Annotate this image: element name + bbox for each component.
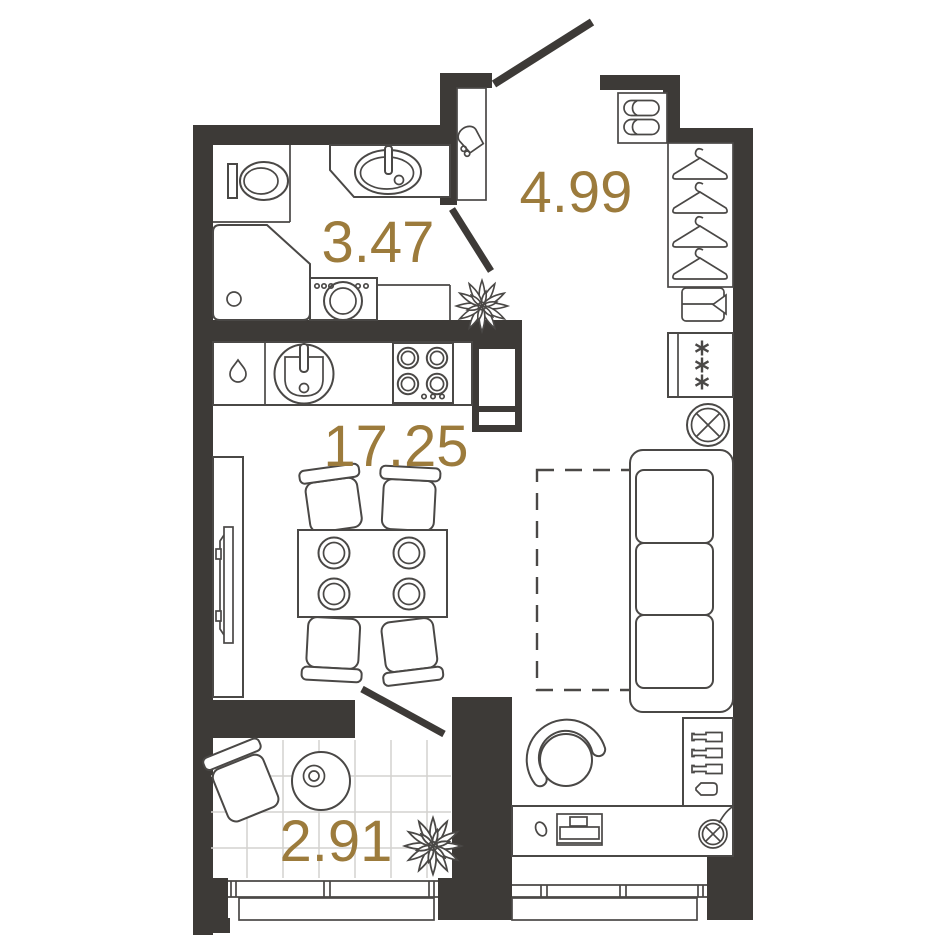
floor-plan-page: 3.47 4.99 17.25 2.91 xyxy=(0,0,945,945)
wall-balcony-corner-right xyxy=(438,878,452,920)
balcony-door-leaf xyxy=(362,689,444,734)
tap-icon xyxy=(300,344,308,372)
wall-bathroom-top xyxy=(193,125,448,145)
shoe-shelf xyxy=(618,93,667,143)
tv-stand xyxy=(213,457,243,697)
vent-shaft xyxy=(472,342,522,432)
wall-bottom-right xyxy=(707,856,753,920)
drawer-unit xyxy=(682,288,726,321)
sofa-cushion xyxy=(636,470,713,543)
area-label-hallway: 4.99 xyxy=(520,160,633,225)
bottles-shelf xyxy=(683,718,733,806)
laptop-icon xyxy=(557,814,602,845)
kitchen xyxy=(213,342,472,405)
washing-machine xyxy=(310,278,377,320)
desk xyxy=(512,806,734,856)
sofa xyxy=(630,450,733,712)
bottle-icon xyxy=(692,749,722,758)
wall-right-outer xyxy=(733,143,753,920)
hallway-cabinet xyxy=(452,88,486,200)
bathroom-sink xyxy=(330,145,450,197)
wall-top-right-a xyxy=(600,75,680,90)
floor-plan: 3.47 4.99 17.25 2.91 xyxy=(0,0,945,945)
wardrobe xyxy=(668,143,733,287)
wall-balcony-corner-left xyxy=(193,878,228,920)
bottle-icon xyxy=(692,733,722,742)
fridge-freezer xyxy=(668,333,733,397)
toilet xyxy=(228,162,288,200)
bottle-icon xyxy=(692,765,722,774)
dining-chair xyxy=(377,617,444,687)
vent-shaft-opening xyxy=(479,349,515,406)
wall-column-bottom xyxy=(452,697,512,920)
wall-top-right-c xyxy=(663,128,753,143)
slipper-icon xyxy=(624,120,659,135)
dining-table xyxy=(298,530,447,617)
wall-bottom-left-stub xyxy=(213,918,230,933)
slipper-icon xyxy=(624,101,659,116)
dining-chair xyxy=(301,616,364,682)
hob xyxy=(393,343,453,403)
tap-icon xyxy=(385,146,392,174)
ceiling-light xyxy=(687,404,729,446)
bed-outline-dashed xyxy=(537,470,631,690)
sofa-cushion xyxy=(636,615,713,688)
window-living-sill xyxy=(512,898,697,920)
bathroom-door-leaf xyxy=(452,209,491,271)
entry-door-leaf xyxy=(494,22,592,84)
shower xyxy=(213,225,310,320)
sofa-cushion xyxy=(636,543,713,615)
area-label-bathroom: 3.47 xyxy=(322,210,435,275)
vent-shaft-opening-small xyxy=(479,412,515,425)
window-balcony-sill xyxy=(239,898,434,920)
area-label-living: 17.25 xyxy=(323,414,468,479)
area-label-balcony: 2.91 xyxy=(280,809,393,874)
armchair xyxy=(527,720,605,787)
wall-balcony xyxy=(193,700,355,738)
wall-left-outer xyxy=(193,125,213,935)
bath-counter xyxy=(377,285,450,320)
window-living xyxy=(512,884,707,920)
flask-icon xyxy=(696,783,717,795)
wall-entry-jamb xyxy=(440,73,492,88)
window-balcony xyxy=(228,880,438,920)
tv xyxy=(224,527,233,643)
balcony-table xyxy=(292,752,350,810)
